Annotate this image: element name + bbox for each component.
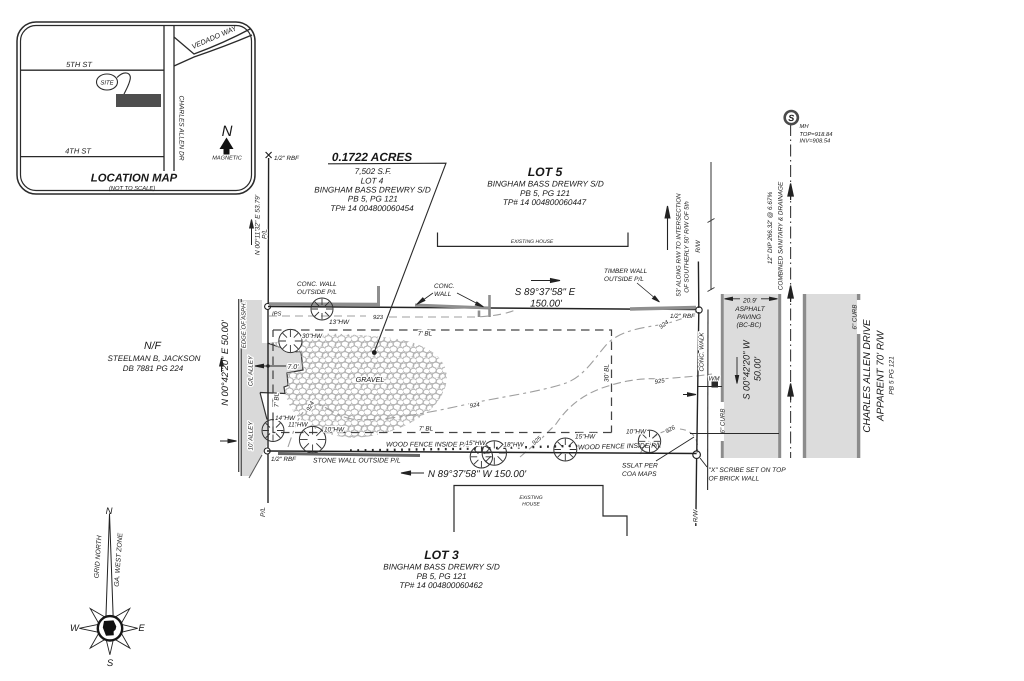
svg-text:7' BL: 7' BL (274, 392, 281, 407)
svg-text:50.00': 50.00' (753, 357, 763, 382)
svg-text:SSLAT PER: SSLAT PER (622, 463, 658, 470)
svg-text:STONE WALL OUTSIDE P/L: STONE WALL OUTSIDE P/L (313, 458, 401, 465)
svg-text:P/L: P/L (262, 229, 269, 239)
svg-text:R/W: R/W (695, 239, 702, 252)
svg-text:1/2" RBF: 1/2" RBF (274, 155, 300, 162)
svg-text:BINGHAM BASS DREWRY S/D: BINGHAM BASS DREWRY S/D (314, 186, 431, 195)
svg-text:LOT 3: LOT 3 (424, 548, 459, 562)
svg-text:INV=908.54: INV=908.54 (800, 138, 831, 145)
svg-text:SITE: SITE (100, 80, 114, 87)
svg-text:5TH ST: 5TH ST (66, 60, 93, 69)
svg-text:N: N (106, 506, 113, 517)
svg-text:12" DIP 266.32' @ 6.67%: 12" DIP 266.32' @ 6.67% (767, 192, 774, 265)
svg-text:DB 7881 PG 224: DB 7881 PG 224 (123, 364, 184, 373)
svg-text:923: 923 (373, 314, 384, 321)
svg-text:LOT 4: LOT 4 (361, 177, 384, 186)
svg-text:W: W (70, 623, 80, 634)
svg-text:18"HW: 18"HW (504, 442, 525, 449)
svg-text:TIMBER WALL: TIMBER WALL (604, 268, 648, 275)
svg-text:PAVING: PAVING (737, 314, 761, 321)
svg-text:7' BL: 7' BL (419, 426, 434, 433)
svg-text:10"HW: 10"HW (626, 429, 647, 436)
svg-text:TP# 14 004800060454: TP# 14 004800060454 (330, 204, 414, 213)
svg-text:0.1722 ACRES: 0.1722 ACRES (332, 150, 412, 164)
svg-text:10' ALLEY: 10' ALLEY (248, 421, 255, 451)
svg-text:N/F: N/F (144, 340, 162, 352)
svg-text:7.0': 7.0' (287, 364, 299, 371)
svg-text:OF SOUTHERLY 50' R/W OF 5th: OF SOUTHERLY 50' R/W OF 5th (684, 201, 691, 293)
svg-text:C/L ALLEY: C/L ALLEY (248, 355, 255, 386)
svg-text:N: N (222, 123, 233, 140)
svg-text:S 00°42'20" W: S 00°42'20" W (742, 339, 752, 400)
svg-text:TP# 14 004800060462: TP# 14 004800060462 (399, 581, 483, 590)
svg-text:N 00°11'32" E 53.79': N 00°11'32" E 53.79' (255, 194, 262, 255)
svg-text:BINGHAM BASS DREWRY S/D: BINGHAM BASS DREWRY S/D (487, 180, 604, 189)
svg-text:OF BRICK WALL: OF BRICK WALL (709, 476, 760, 483)
svg-text:BINGHAM BASS DREWRY S/D: BINGHAM BASS DREWRY S/D (383, 563, 500, 572)
svg-text:CONC. WALK: CONC. WALK (699, 332, 706, 372)
svg-text:6" CURB: 6" CURB (720, 409, 727, 434)
svg-text:LOT 5: LOT 5 (528, 165, 563, 179)
svg-text:S: S (107, 658, 114, 669)
svg-text:7,502 S.F.: 7,502 S.F. (355, 167, 392, 176)
svg-text:N 89°37'58" W 150.00': N 89°37'58" W 150.00' (428, 469, 527, 480)
svg-text:15"HW: 15"HW (466, 440, 487, 447)
svg-text:E: E (138, 623, 145, 634)
svg-text:WALL: WALL (434, 291, 452, 298)
svg-text:WM: WM (709, 376, 721, 383)
svg-text:EXISTING HOUSE: EXISTING HOUSE (511, 239, 554, 245)
svg-text:TP# 14 004800060447: TP# 14 004800060447 (503, 198, 587, 207)
svg-text:ASPHALT: ASPHALT (734, 306, 766, 313)
svg-text:"X" SCRIBE SET ON TOP: "X" SCRIBE SET ON TOP (709, 467, 787, 474)
svg-text:P/L: P/L (260, 507, 267, 517)
svg-text:COMBINED SANITARY & DRAINAGE: COMBINED SANITARY & DRAINAGE (778, 181, 785, 290)
svg-text:LOCATION MAP: LOCATION MAP (91, 173, 178, 185)
svg-text:924: 924 (469, 401, 481, 409)
svg-text:30' BL: 30' BL (604, 364, 611, 382)
svg-text:OUTSIDE P/L: OUTSIDE P/L (604, 276, 644, 283)
svg-text:S 89°37'58" E: S 89°37'58" E (515, 287, 576, 298)
svg-text:10"HW: 10"HW (324, 427, 345, 434)
svg-text:MH: MH (800, 124, 810, 130)
svg-text:PB 5, PG 121: PB 5, PG 121 (520, 189, 570, 198)
svg-text:53' ALONG R/W TO INTERSECTION: 53' ALONG R/W TO INTERSECTION (676, 193, 683, 296)
svg-text:CONC. WALL: CONC. WALL (297, 281, 337, 288)
svg-text:7' BL: 7' BL (418, 331, 433, 338)
svg-text:TOP=918.84: TOP=918.84 (800, 131, 833, 138)
svg-text:PB 5, PG 121: PB 5, PG 121 (348, 195, 398, 204)
svg-text:WOOD FENCE INSIDE P/L: WOOD FENCE INSIDE P/L (386, 442, 470, 449)
svg-text:GRAVEL: GRAVEL (356, 375, 385, 384)
svg-text:CHARLES ALLEN DRIVE: CHARLES ALLEN DRIVE (862, 319, 873, 433)
svg-text:150.00': 150.00' (530, 299, 563, 310)
svg-text:S: S (788, 113, 794, 123)
svg-text:R/W: R/W (693, 509, 700, 522)
svg-text:MAGNETIC: MAGNETIC (212, 156, 242, 162)
svg-text:OUTSIDE P/L: OUTSIDE P/L (297, 289, 337, 296)
svg-text:13"HW: 13"HW (329, 319, 350, 326)
svg-text:HOUSE: HOUSE (522, 502, 540, 508)
svg-text:COA MAPS: COA MAPS (622, 471, 657, 478)
svg-text:6" CURB: 6" CURB (852, 305, 859, 330)
svg-text:PB 5 PG 121: PB 5 PG 121 (889, 356, 896, 395)
svg-text:20.9': 20.9' (742, 298, 758, 305)
svg-text:EDGE OF ASPH.: EDGE OF ASPH. (241, 302, 248, 348)
svg-text:(NOT TO SCALE): (NOT TO SCALE) (109, 185, 155, 192)
svg-text:CHARLES ALLEN DR: CHARLES ALLEN DR (178, 96, 185, 161)
svg-text:EXISTING: EXISTING (519, 495, 542, 501)
svg-text:15"HW: 15"HW (575, 434, 596, 441)
svg-text:1/2" RBF: 1/2" RBF (670, 313, 696, 320)
svg-text:CONC.: CONC. (434, 283, 455, 290)
svg-text:PB 5, PG 121: PB 5, PG 121 (416, 572, 466, 581)
svg-text:STEELMAN B, JACKSON: STEELMAN B, JACKSON (108, 354, 201, 363)
svg-text:1/2" RBF: 1/2" RBF (271, 456, 297, 463)
svg-text:11"HW: 11"HW (288, 422, 309, 429)
svg-text:APPARENT 70' R/W: APPARENT 70' R/W (876, 329, 887, 422)
svg-text:4TH ST: 4TH ST (65, 147, 92, 156)
svg-text:(BC-BC): (BC-BC) (737, 322, 762, 329)
svg-text:30"HW: 30"HW (302, 333, 323, 340)
